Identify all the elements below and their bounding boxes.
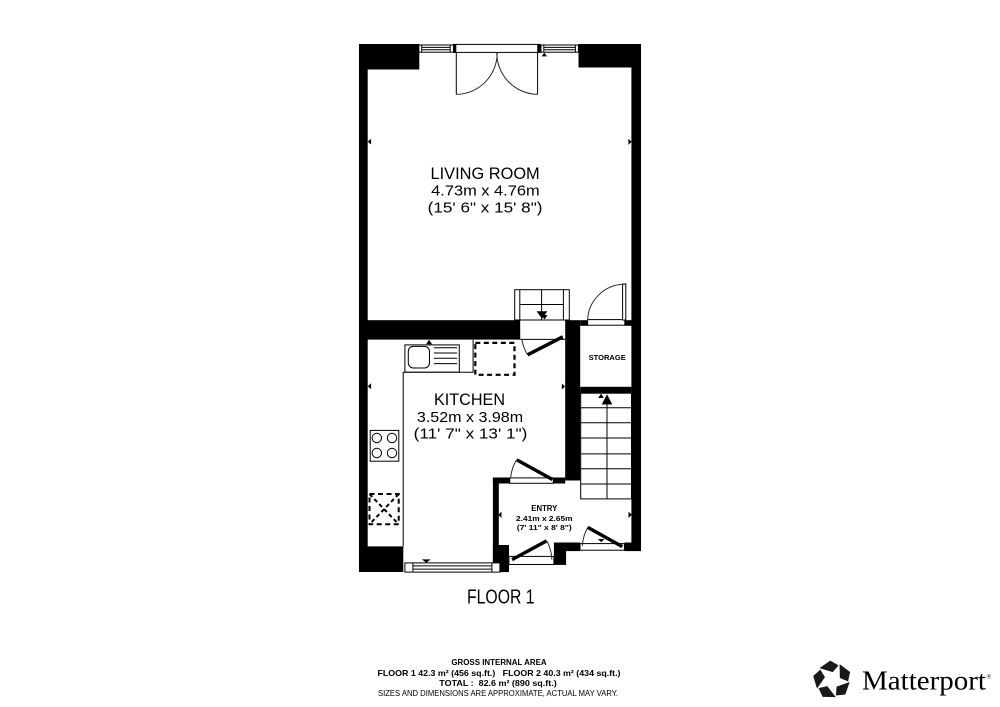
svg-text:FLOOR 1 42.3 m² (456 sq.ft.): FLOOR 1 42.3 m² (456 sq.ft.) FLOOR 2 40.… xyxy=(378,668,621,678)
svg-text:LIVING ROOM: LIVING ROOM xyxy=(431,165,540,183)
svg-text:(15' 6" x 15' 8"): (15' 6" x 15' 8") xyxy=(428,199,543,216)
svg-text:®: ® xyxy=(987,674,992,681)
svg-text:TOTAL : 82.6 m² (890 sq.ft.): TOTAL : 82.6 m² (890 sq.ft.) xyxy=(439,678,557,688)
svg-text:(7' 11" x 8' 8"): (7' 11" x 8' 8") xyxy=(517,523,572,532)
svg-text:ENTRY: ENTRY xyxy=(531,504,558,513)
svg-text:GROSS INTERNAL AREA: GROSS INTERNAL AREA xyxy=(451,657,546,667)
svg-text:4.73m x 4.76m: 4.73m x 4.76m xyxy=(431,183,540,200)
svg-text:2.41m x 2.65m: 2.41m x 2.65m xyxy=(516,514,573,523)
svg-text:Matterport: Matterport xyxy=(862,665,986,696)
svg-text:FLOOR 1: FLOOR 1 xyxy=(467,586,535,609)
svg-text:SIZES AND DIMENSIONS ARE APPRO: SIZES AND DIMENSIONS ARE APPROXIMATE, AC… xyxy=(378,689,618,698)
svg-text:3.52m x 3.98m: 3.52m x 3.98m xyxy=(417,409,523,426)
svg-text:STORAGE: STORAGE xyxy=(589,353,626,362)
svg-text:KITCHEN: KITCHEN xyxy=(434,391,505,409)
svg-text:(11' 7" x 13' 1"): (11' 7" x 13' 1") xyxy=(414,426,528,443)
